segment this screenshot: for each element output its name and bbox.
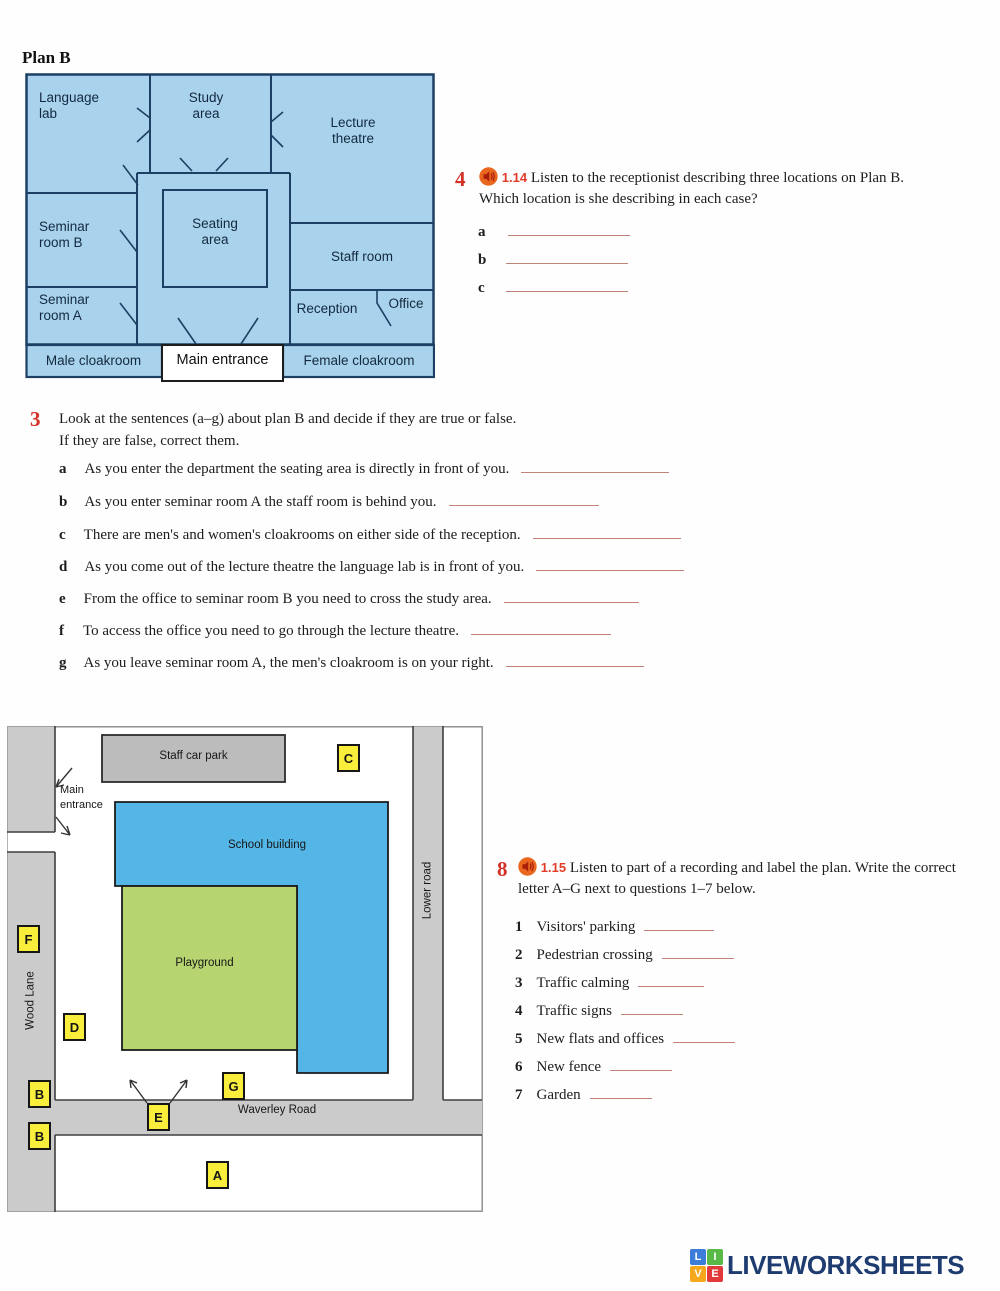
audio-track-number: 1.14 xyxy=(502,170,527,185)
answer-row-a: a xyxy=(478,222,630,241)
worksheet-page: Plan B xyxy=(0,0,1000,1291)
logo-square-i: I xyxy=(707,1249,723,1265)
map-main-entrance-label: Main entrance xyxy=(60,783,122,813)
school-building-label: School building xyxy=(197,838,337,853)
map-marker-b2: B xyxy=(28,1122,51,1150)
label-blank-5[interactable] xyxy=(673,1029,735,1043)
label-number: 2 xyxy=(515,947,523,963)
map-marker-f: F xyxy=(17,925,40,953)
statement-label: c xyxy=(59,527,66,543)
statement-row-c: c There are men's and women's cloakrooms… xyxy=(59,525,681,546)
room-reception: Reception xyxy=(289,301,365,317)
label-text: New flats and offices xyxy=(537,1031,665,1047)
room-female-cloakroom: Female cloakroom xyxy=(283,353,435,369)
playground-label: Playground xyxy=(147,956,262,971)
label-text: New fence xyxy=(537,1059,602,1075)
label-number: 3 xyxy=(515,975,523,991)
statement-text: As you enter seminar room A the staff ro… xyxy=(84,494,436,510)
answer-blank-a[interactable] xyxy=(508,222,630,236)
answer-label: c xyxy=(478,280,485,296)
map-marker-a: A xyxy=(206,1161,229,1189)
statement-row-b: b As you enter seminar room A the staff … xyxy=(59,492,599,513)
room-staff-room: Staff room xyxy=(312,249,412,265)
statement-blank-g[interactable] xyxy=(506,653,644,667)
exercise-8-instructions: 1.15 Listen to part of a recording and l… xyxy=(518,857,993,900)
label-number: 6 xyxy=(515,1059,523,1075)
wood-lane-label: Wood Lane xyxy=(24,961,39,1041)
label-number: 5 xyxy=(515,1031,523,1047)
statement-text: As you leave seminar room A, the men's c… xyxy=(84,655,494,671)
map-marker-b1: B xyxy=(28,1080,51,1108)
label-blank-1[interactable] xyxy=(644,917,714,931)
map-marker-d: D xyxy=(63,1013,86,1041)
label-text: Pedestrian crossing xyxy=(537,947,653,963)
room-office: Office xyxy=(381,296,431,312)
room-study-area: Study area xyxy=(182,90,230,122)
label-row-4: 4 Traffic signs xyxy=(515,1001,683,1022)
statement-blank-b[interactable] xyxy=(449,492,599,506)
label-text: Garden xyxy=(537,1087,581,1103)
plan-title: Plan B xyxy=(22,48,71,68)
exercise-4-number: 4 xyxy=(455,167,466,192)
statement-text: To access the office you need to go thro… xyxy=(83,623,459,639)
label-number: 4 xyxy=(515,1003,523,1019)
logo-icon: L I V E xyxy=(690,1249,723,1282)
answer-blank-c[interactable] xyxy=(506,278,628,292)
label-row-3: 3 Traffic calming xyxy=(515,973,704,994)
statement-label: a xyxy=(59,461,67,477)
audio-track-number: 1.15 xyxy=(541,860,566,875)
exercise-4-line2: Which location is she describing in each… xyxy=(479,189,987,210)
exercise-3-number: 3 xyxy=(30,407,41,432)
statement-row-g: g As you leave seminar room A, the men's… xyxy=(59,653,644,674)
exercise-4-line1: Listen to the receptionist describing th… xyxy=(531,170,904,186)
map-marker-g: G xyxy=(222,1072,245,1100)
exercise-3-line2: If they are false, correct them. xyxy=(59,431,239,452)
statement-label: d xyxy=(59,559,67,575)
statement-row-f: f To access the office you need to go th… xyxy=(59,621,611,642)
label-row-1: 1 Visitors' parking xyxy=(515,917,714,938)
statement-blank-a[interactable] xyxy=(521,459,669,473)
staff-car-park-label: Staff car park xyxy=(103,749,284,764)
room-male-cloakroom: Male cloakroom xyxy=(25,353,162,369)
room-language-lab: Language lab xyxy=(39,90,111,122)
label-row-2: 2 Pedestrian crossing xyxy=(515,945,734,966)
room-lecture-theatre: Lecture theatre xyxy=(323,115,383,147)
statement-blank-f[interactable] xyxy=(471,621,611,635)
label-row-5: 5 New flats and offices xyxy=(515,1029,735,1050)
exercise-8-line1: Listen to part of a recording and label … xyxy=(570,860,956,876)
room-main-entrance: Main entrance xyxy=(162,352,283,368)
exercise-3-line1: Look at the sentences (a–g) about plan B… xyxy=(59,409,516,430)
answer-blank-b[interactable] xyxy=(506,250,628,264)
map-marker-e: E xyxy=(147,1103,170,1131)
map-marker-c: C xyxy=(337,744,360,772)
statement-row-e: e From the office to seminar room B you … xyxy=(59,589,639,610)
statement-row-d: d As you come out of the lecture theatre… xyxy=(59,557,684,578)
statement-row-a: a As you enter the department the seatin… xyxy=(59,459,669,480)
room-seminar-a: Seminar room A xyxy=(39,292,101,324)
exercise-8-line2: letter A–G next to questions 1–7 below. xyxy=(518,879,993,900)
lower-road-label: Lower road xyxy=(421,851,436,931)
answer-label: a xyxy=(478,224,486,240)
label-row-7: 7 Garden xyxy=(515,1085,652,1106)
label-row-6: 6 New fence xyxy=(515,1057,672,1078)
logo-square-v: V xyxy=(690,1266,706,1282)
logo-square-e: E xyxy=(707,1266,723,1282)
waverley-road-label: Waverley Road xyxy=(192,1103,362,1118)
logo-square-l: L xyxy=(690,1249,706,1265)
label-number: 1 xyxy=(515,919,523,935)
label-text: Traffic calming xyxy=(537,975,630,991)
exercise-8-number: 8 xyxy=(497,857,508,882)
statement-text: As you enter the department the seating … xyxy=(85,461,510,477)
answer-row-b: b xyxy=(478,250,628,269)
audio-icon xyxy=(479,167,498,186)
label-blank-4[interactable] xyxy=(621,1001,683,1015)
statement-text: As you come out of the lecture theatre t… xyxy=(84,559,524,575)
statement-label: g xyxy=(59,655,67,671)
street-map: Staff car park Main entrance School buil… xyxy=(7,726,483,1212)
liveworksheets-logo[interactable]: L I V E LIVEWORKSHEETS xyxy=(690,1249,964,1282)
statement-text: There are men's and women's cloakrooms o… xyxy=(84,527,521,543)
exercise-4-instructions: 1.14 Listen to the receptionist describi… xyxy=(479,167,987,210)
statement-label: e xyxy=(59,591,66,607)
statement-blank-e[interactable] xyxy=(504,589,639,603)
label-blank-2[interactable] xyxy=(662,945,734,959)
room-seminar-b: Seminar room B xyxy=(39,219,101,251)
statement-blank-d[interactable] xyxy=(536,557,684,571)
label-text: Visitors' parking xyxy=(537,919,636,935)
logo-text: LIVEWORKSHEETS xyxy=(727,1250,964,1281)
label-blank-3[interactable] xyxy=(638,973,704,987)
label-blank-6[interactable] xyxy=(610,1057,672,1071)
answer-label: b xyxy=(478,252,486,268)
statement-text: From the office to seminar room B you ne… xyxy=(84,591,492,607)
audio-icon xyxy=(518,857,537,876)
answer-row-c: c xyxy=(478,278,628,297)
statement-label: b xyxy=(59,494,67,510)
room-seating-area: Seating area xyxy=(190,216,240,248)
label-number: 7 xyxy=(515,1087,523,1103)
statement-label: f xyxy=(59,623,64,639)
label-blank-7[interactable] xyxy=(590,1085,652,1099)
label-text: Traffic signs xyxy=(537,1003,612,1019)
statement-blank-c[interactable] xyxy=(533,525,681,539)
floor-plan: Language lab Study area Lecture theatre … xyxy=(25,73,435,383)
